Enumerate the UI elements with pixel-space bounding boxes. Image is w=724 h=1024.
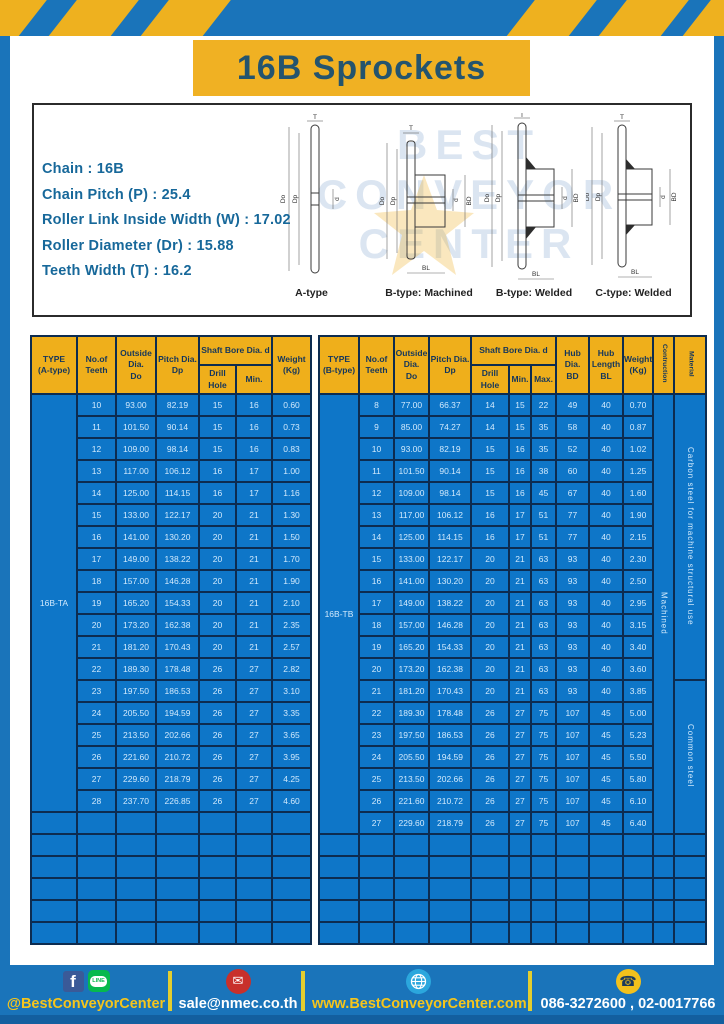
table-cell: 63: [531, 680, 556, 702]
table-cell: 26: [199, 724, 236, 746]
empty-row: [319, 834, 706, 856]
table-cell: 3.65: [272, 724, 311, 746]
page: 16B Sprockets BEST CONVEYOR CENTER Chain…: [0, 0, 724, 1024]
col-header-weight: Weight (Kg): [272, 336, 311, 394]
empty-cell: [116, 812, 156, 834]
table-cell: 93: [556, 680, 589, 702]
col-header-teeth: No.of Teeth: [359, 336, 394, 394]
table-cell: 213.50: [116, 724, 156, 746]
empty-cell: [653, 878, 674, 900]
table-cell: 21: [509, 614, 531, 636]
table-cell: 3.40: [623, 636, 653, 658]
table-row: 19165.20154.3320216393403.40: [319, 636, 706, 658]
table-row: 21181.20170.4320216393403.85Common steel: [319, 680, 706, 702]
empty-cell: [394, 922, 429, 944]
empty-row: [31, 900, 311, 922]
table-cell: 2.30: [623, 548, 653, 570]
table-cell: 1.90: [272, 570, 311, 592]
table-cell: 101.50: [116, 416, 156, 438]
table-row: 16B-TB877.0066.3714152249400.70MachinedC…: [319, 394, 706, 416]
table-cell: 45: [589, 790, 623, 812]
line-icon[interactable]: LINE: [88, 970, 110, 992]
empty-cell: [623, 900, 653, 922]
table-cell: 17: [359, 592, 394, 614]
table-cell: 38: [531, 460, 556, 482]
empty-cell: [272, 812, 311, 834]
table-cell: 133.00: [116, 504, 156, 526]
table-cell: 2.82: [272, 658, 311, 680]
table-cell: 1.02: [623, 438, 653, 460]
table-cell: 0.70: [623, 394, 653, 416]
table-cell: 74.27: [429, 416, 471, 438]
empty-cell: [509, 900, 531, 922]
empty-cell: [394, 900, 429, 922]
table-cell: 40: [589, 394, 623, 416]
empty-cell: [556, 900, 589, 922]
empty-cell: [589, 900, 623, 922]
table-cell: 1.00: [272, 460, 311, 482]
table-cell: 114.15: [156, 482, 199, 504]
table-cell: 210.72: [156, 746, 199, 768]
table-cell: 93: [556, 592, 589, 614]
empty-row: [31, 812, 311, 834]
table-cell: 63: [531, 658, 556, 680]
col-header-drill-hole: Drill Hole: [199, 365, 236, 394]
table-cell: 3.15: [623, 614, 653, 636]
svg-text:Dp: Dp: [595, 192, 602, 201]
empty-cell: [272, 878, 311, 900]
table-cell: 23: [77, 680, 116, 702]
empty-cell: [199, 900, 236, 922]
table-cell: 27: [359, 812, 394, 834]
table-cell: 13: [77, 460, 116, 482]
table-cell: 45: [589, 812, 623, 834]
empty-cell: [236, 856, 272, 878]
table-cell: 98.14: [429, 482, 471, 504]
table-cell: 1.16: [272, 482, 311, 504]
empty-cell: [471, 878, 509, 900]
svg-text:BL: BL: [422, 265, 430, 272]
footer-email-group[interactable]: ✉ sale@nmec.co.th: [178, 968, 298, 1012]
table-cell: 21: [509, 592, 531, 614]
mail-icon[interactable]: ✉: [226, 969, 251, 994]
table-cell: 26: [199, 702, 236, 724]
table-row: 15133.00122.1720216393402.30: [319, 548, 706, 570]
footer-divider: [301, 971, 305, 1011]
table-cell: 2.95: [623, 592, 653, 614]
table-cell: 122.17: [429, 548, 471, 570]
table-cell: 75: [531, 746, 556, 768]
empty-cell: [394, 856, 429, 878]
empty-cell: [31, 856, 77, 878]
table-cell: 2.50: [623, 570, 653, 592]
table-cell: 93.00: [394, 438, 429, 460]
empty-cell: [199, 856, 236, 878]
table-cell: 125.00: [116, 482, 156, 504]
caution-stripe: [0, 0, 50, 36]
table-row: 22189.30178.48262775107455.00: [319, 702, 706, 724]
spec-line: Roller Link Inside Width (W) : 17.02: [42, 208, 291, 234]
empty-cell: [429, 922, 471, 944]
page-title: 16B Sprockets: [193, 40, 530, 96]
table-cell: 16: [236, 416, 272, 438]
table-cell: 27: [509, 702, 531, 724]
table-row: 1093.0082.1915163552401.02: [319, 438, 706, 460]
table-cell: 22: [359, 702, 394, 724]
table-cell: 60: [556, 460, 589, 482]
table-cell: 186.53: [429, 724, 471, 746]
table-row: 26221.60210.72262775107456.10: [319, 790, 706, 812]
table-cell: 93: [556, 658, 589, 680]
footer-phone-group[interactable]: ☎ 086-3272600 , 02-0017766: [538, 968, 718, 1012]
table-cell: 218.79: [156, 768, 199, 790]
table-cell: 20: [471, 680, 509, 702]
table-cell: 24: [77, 702, 116, 724]
empty-cell: [272, 922, 311, 944]
table-cell: 149.00: [394, 592, 429, 614]
table-cell: 40: [589, 460, 623, 482]
col-header-material: Material: [674, 336, 706, 394]
table-cell: 20: [199, 614, 236, 636]
sprocket-cross-section: T Do Dp d BD BL: [586, 113, 681, 285]
empty-cell: [674, 922, 706, 944]
drawing-label: A-type: [274, 287, 349, 299]
svg-text:d: d: [453, 198, 460, 202]
table-cell: 16: [509, 482, 531, 504]
table-cell: 93.00: [116, 394, 156, 416]
spec-box: BEST CONVEYOR CENTER Chain : 16B Chain P…: [32, 103, 692, 317]
table-cell: 15: [509, 416, 531, 438]
phone-numbers[interactable]: 086-3272600 , 02-0017766: [538, 996, 718, 1012]
col-header-pitch-dia: Pitch Dia. Dp: [429, 336, 471, 394]
table-cell: 107: [556, 724, 589, 746]
table-row: 17149.00138.2220216393402.95: [319, 592, 706, 614]
table-cell: 141.00: [394, 570, 429, 592]
empty-cell: [236, 922, 272, 944]
empty-cell: [653, 900, 674, 922]
table-cell: 20: [199, 592, 236, 614]
table-cell: 75: [531, 768, 556, 790]
table-cell: 130.20: [156, 526, 199, 548]
table-row: 25213.50202.66262775107455.80: [319, 768, 706, 790]
table-cell: 21: [509, 548, 531, 570]
table-cell: 1.60: [623, 482, 653, 504]
footer-divider: [168, 971, 172, 1011]
table-cell: 17: [509, 504, 531, 526]
empty-cell: [556, 878, 589, 900]
table-cell: 93: [556, 614, 589, 636]
table-cell: 165.20: [394, 636, 429, 658]
table-cell: 146.28: [156, 570, 199, 592]
table-cell: 1.70: [272, 548, 311, 570]
table-cell: 21: [77, 636, 116, 658]
table-cell: 194.59: [429, 746, 471, 768]
table-row: 16141.00130.2020216393402.50: [319, 570, 706, 592]
table-cell: 21: [236, 636, 272, 658]
table-cell: 181.20: [116, 636, 156, 658]
table-cell: 8: [359, 394, 394, 416]
table-cell: 98.14: [156, 438, 199, 460]
svg-text:Dp: Dp: [495, 193, 502, 202]
empty-row: [31, 922, 311, 944]
empty-cell: [531, 900, 556, 922]
type-cell: 16B-TA: [31, 394, 77, 812]
table-cell: 17: [236, 460, 272, 482]
footer-social-group[interactable]: f LINE @BestConveyorCenter: [5, 968, 167, 1012]
col-header-outside-dia: Outside Dia. Do: [116, 336, 156, 394]
empty-row: [31, 878, 311, 900]
footer-website-group[interactable]: www.BestConveyorCenter.com: [312, 968, 524, 1012]
table-cell: 63: [531, 636, 556, 658]
table-cell: 16: [509, 438, 531, 460]
col-header-teeth: No.of Teeth: [77, 336, 116, 394]
table-cell: 15: [199, 416, 236, 438]
table-cell: 40: [589, 570, 623, 592]
social-handle[interactable]: @BestConveyorCenter: [5, 996, 167, 1012]
table-cell: 170.43: [429, 680, 471, 702]
table-row: 985.0074.2714153558400.87: [319, 416, 706, 438]
table-cell: 15: [471, 482, 509, 504]
empty-cell: [509, 834, 531, 856]
svg-text:BD: BD: [573, 193, 580, 202]
table-cell: 141.00: [116, 526, 156, 548]
col-header-type: TYPE (B-type): [319, 336, 359, 394]
table-cell: 5.00: [623, 702, 653, 724]
empty-cell: [674, 834, 706, 856]
table-cell: 45: [589, 702, 623, 724]
empty-cell: [359, 878, 394, 900]
empty-cell: [471, 834, 509, 856]
phone-icon[interactable]: ☎: [616, 969, 641, 994]
table-cell: 21: [509, 658, 531, 680]
empty-cell: [156, 878, 199, 900]
table-cell: 20: [199, 548, 236, 570]
table-cell: 2.57: [272, 636, 311, 658]
table-cell: 20: [77, 614, 116, 636]
table-cell: 26: [199, 658, 236, 680]
table-cell: 26: [471, 790, 509, 812]
table-row: 13117.00106.1216175177401.90: [319, 504, 706, 526]
table-cell: 22: [77, 658, 116, 680]
table-cell: 10: [359, 438, 394, 460]
table-cell: 197.50: [116, 680, 156, 702]
table-cell: 9: [359, 416, 394, 438]
empty-cell: [653, 922, 674, 944]
website-url[interactable]: www.BestConveyorCenter.com: [312, 996, 524, 1012]
table-cell: 107: [556, 790, 589, 812]
facebook-icon[interactable]: f: [63, 971, 84, 992]
table-cell: 27: [509, 746, 531, 768]
table-cell: 27: [509, 768, 531, 790]
table-row: 16B-TA1093.0082.1915160.60: [31, 394, 311, 416]
empty-cell: [531, 878, 556, 900]
table-cell: 93: [556, 636, 589, 658]
empty-cell: [623, 856, 653, 878]
table-cell: 77: [556, 526, 589, 548]
header-row: TYPE (A-type) No.of Teeth Outside Dia. D…: [31, 336, 311, 365]
table-cell: 75: [531, 724, 556, 746]
table-cell: 14: [471, 416, 509, 438]
table-cell: 0.60: [272, 394, 311, 416]
table-cell: 178.48: [429, 702, 471, 724]
sprocket-cross-section: T Do Dp d BD BL: [484, 113, 584, 285]
table-cell: 16: [77, 526, 116, 548]
col-header-max: Max.: [531, 365, 556, 394]
table-cell: 77.00: [394, 394, 429, 416]
drawing-label: B-type: Welded: [484, 287, 584, 299]
table-cell: 27: [509, 790, 531, 812]
table-cell: 149.00: [116, 548, 156, 570]
table-cell: 107: [556, 746, 589, 768]
table-cell: 15: [199, 438, 236, 460]
table-cell: 162.38: [429, 658, 471, 680]
table-cell: 85.00: [394, 416, 429, 438]
empty-cell: [556, 834, 589, 856]
table-cell: 5.23: [623, 724, 653, 746]
empty-cell: [199, 922, 236, 944]
table-cell: 189.30: [394, 702, 429, 724]
table-cell: 10: [77, 394, 116, 416]
table-cell: 154.33: [156, 592, 199, 614]
table-cell: 4.25: [272, 768, 311, 790]
email-address[interactable]: sale@nmec.co.th: [178, 996, 298, 1012]
table-cell: 0.87: [623, 416, 653, 438]
table-cell: 117.00: [116, 460, 156, 482]
table-cell: 27: [236, 746, 272, 768]
empty-cell: [394, 834, 429, 856]
table-cell: 21: [509, 570, 531, 592]
table-cell: 20: [471, 592, 509, 614]
table-cell: 93: [556, 548, 589, 570]
table-cell: 16: [509, 460, 531, 482]
table-cell: 15: [77, 504, 116, 526]
table-cell: 15: [509, 394, 531, 416]
table-cell: 17: [509, 526, 531, 548]
table-cell: 40: [589, 680, 623, 702]
empty-cell: [31, 922, 77, 944]
table-cell: 12: [77, 438, 116, 460]
empty-row: [319, 856, 706, 878]
table-cell: 20: [471, 658, 509, 680]
table-cell: 21: [236, 504, 272, 526]
table-cell: 1.25: [623, 460, 653, 482]
table-cell: 75: [531, 812, 556, 834]
table-cell: 15: [359, 548, 394, 570]
table-cell: 21: [509, 680, 531, 702]
svg-text:BD: BD: [671, 192, 678, 201]
table-cell: 229.60: [116, 768, 156, 790]
table-cell: 130.20: [429, 570, 471, 592]
empty-cell: [429, 878, 471, 900]
table-cell: 51: [531, 504, 556, 526]
svg-text:Dp: Dp: [292, 194, 299, 203]
table-cell: 26: [471, 724, 509, 746]
table-cell: 27: [236, 724, 272, 746]
svg-text:Dp: Dp: [390, 196, 397, 205]
table-cell: 221.60: [116, 746, 156, 768]
empty-cell: [156, 812, 199, 834]
empty-cell: [556, 922, 589, 944]
empty-cell: [359, 834, 394, 856]
empty-cell: [236, 834, 272, 856]
table-cell: 2.10: [272, 592, 311, 614]
table-cell: 226.85: [156, 790, 199, 812]
empty-cell: [77, 856, 116, 878]
table-cell: 109.00: [394, 482, 429, 504]
table-cell: 40: [589, 614, 623, 636]
table-cell: 20: [199, 570, 236, 592]
table-cell: 20: [199, 504, 236, 526]
material-cell: Carbon steel for machine structural use: [674, 394, 706, 680]
table-cell: 109.00: [116, 438, 156, 460]
table-cell: 27: [509, 724, 531, 746]
table-cell: 26: [471, 812, 509, 834]
empty-cell: [77, 922, 116, 944]
empty-cell: [319, 856, 359, 878]
svg-text:d: d: [562, 196, 569, 200]
material-cell: Common steel: [674, 680, 706, 834]
table-cell: 5.80: [623, 768, 653, 790]
svg-text:T: T: [620, 114, 624, 121]
table-cell: 11: [359, 460, 394, 482]
material-cell-label: Common steel: [686, 724, 694, 788]
svg-text:d: d: [334, 197, 341, 201]
empty-cell: [429, 856, 471, 878]
table-cell: 20: [199, 526, 236, 548]
globe-icon[interactable]: [406, 969, 431, 994]
table-cell: 17: [236, 482, 272, 504]
empty-cell: [429, 900, 471, 922]
empty-cell: [589, 834, 623, 856]
svg-text:Do: Do: [484, 193, 491, 202]
table-cell: 194.59: [156, 702, 199, 724]
table-cell: 107: [556, 768, 589, 790]
table-cell: 20: [359, 658, 394, 680]
material-header-label: Material: [687, 351, 694, 377]
empty-cell: [31, 834, 77, 856]
table-cell: 35: [531, 438, 556, 460]
table-cell: 25: [359, 768, 394, 790]
table-cell: 21: [236, 526, 272, 548]
table-cell: 12: [359, 482, 394, 504]
empty-cell: [429, 834, 471, 856]
table-cell: 16: [199, 482, 236, 504]
material-cell-label: Carbon steel for machine structural use: [686, 447, 694, 626]
svg-text:T: T: [313, 114, 317, 121]
empty-cell: [509, 856, 531, 878]
table-cell: 218.79: [429, 812, 471, 834]
table-cell: 21: [359, 680, 394, 702]
svg-text:BD: BD: [466, 196, 473, 205]
construction-header-label: Contruction: [660, 344, 667, 383]
empty-cell: [319, 922, 359, 944]
table-cell: 6.10: [623, 790, 653, 812]
table-cell: 205.50: [394, 746, 429, 768]
col-header-shaft-bore: Shaft Bore Dia. d: [199, 336, 272, 365]
footer-divider: [528, 971, 532, 1011]
table-cell: 63: [531, 570, 556, 592]
drawing-b-type-welded: T Do Dp d BD BL B-type: Welded: [484, 113, 584, 299]
table-cell: 20: [199, 636, 236, 658]
empty-cell: [623, 834, 653, 856]
table-cell: 16: [471, 526, 509, 548]
table-cell: 26: [77, 746, 116, 768]
table-cell: 58: [556, 416, 589, 438]
empty-cell: [471, 856, 509, 878]
empty-cell: [116, 878, 156, 900]
table-cell: 45: [589, 746, 623, 768]
table-cell: 66.37: [429, 394, 471, 416]
